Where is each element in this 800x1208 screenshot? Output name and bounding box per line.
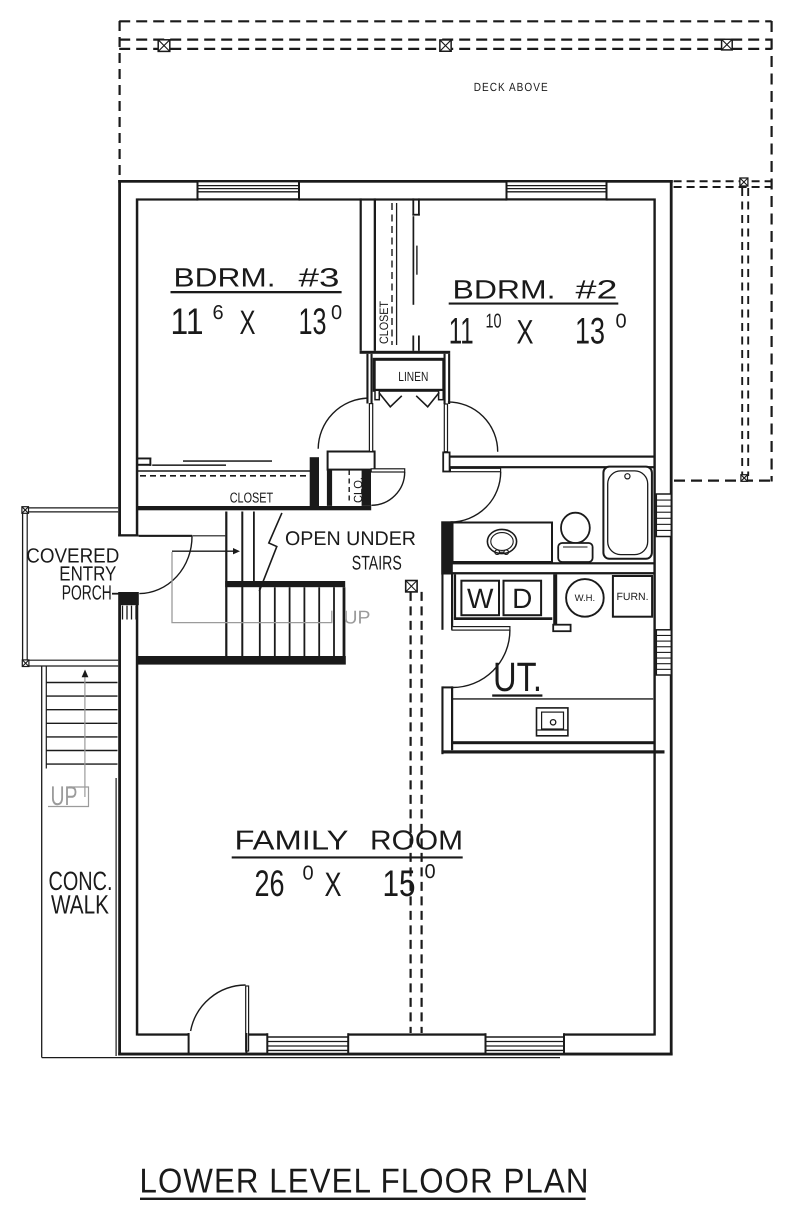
svg-text:ROOM: ROOM (370, 825, 463, 856)
svg-text:LINEN: LINEN (398, 369, 428, 384)
svg-text:OPEN UNDER: OPEN UNDER (285, 528, 416, 550)
svg-text:10: 10 (486, 311, 502, 333)
svg-text:BDRM.: BDRM. (453, 275, 556, 305)
svg-text:WALK: WALK (51, 890, 109, 920)
svg-text:W: W (467, 583, 494, 614)
svg-text:26: 26 (255, 863, 285, 904)
svg-text:BDRM.: BDRM. (174, 263, 276, 293)
svg-text:DECK ABOVE: DECK ABOVE (474, 80, 549, 94)
svg-text:0: 0 (303, 863, 314, 885)
svg-text:0: 0 (425, 861, 436, 883)
svg-text:X: X (325, 866, 342, 904)
svg-text:CLOSET: CLOSET (377, 301, 391, 344)
svg-text:6: 6 (213, 302, 224, 324)
svg-text:X: X (517, 313, 534, 351)
svg-text:STAIRS: STAIRS (352, 553, 402, 575)
svg-text:UP: UP (344, 607, 371, 628)
svg-text:0: 0 (616, 310, 627, 332)
svg-text:#3: #3 (299, 263, 340, 293)
svg-text:LOWER LEVEL FLOOR PLAN: LOWER LEVEL FLOOR PLAN (140, 1163, 590, 1201)
svg-text:15: 15 (383, 863, 416, 904)
svg-text:11: 11 (449, 310, 474, 351)
svg-text:D: D (512, 583, 532, 614)
svg-text:FURN.: FURN. (616, 591, 648, 603)
svg-text:13: 13 (299, 301, 327, 342)
svg-text:UT.: UT. (493, 654, 542, 700)
svg-text:13: 13 (575, 310, 605, 351)
svg-text:FAMILY: FAMILY (235, 825, 349, 856)
svg-text:11: 11 (171, 301, 204, 342)
svg-text:W.H.: W.H. (575, 593, 596, 604)
svg-text:#2: #2 (576, 275, 618, 305)
svg-text:0: 0 (331, 302, 342, 324)
svg-text:CLOSET: CLOSET (230, 491, 274, 507)
svg-text:PORCH: PORCH (62, 582, 112, 605)
svg-text:CLO.: CLO. (351, 477, 365, 503)
svg-text:X: X (240, 304, 256, 342)
